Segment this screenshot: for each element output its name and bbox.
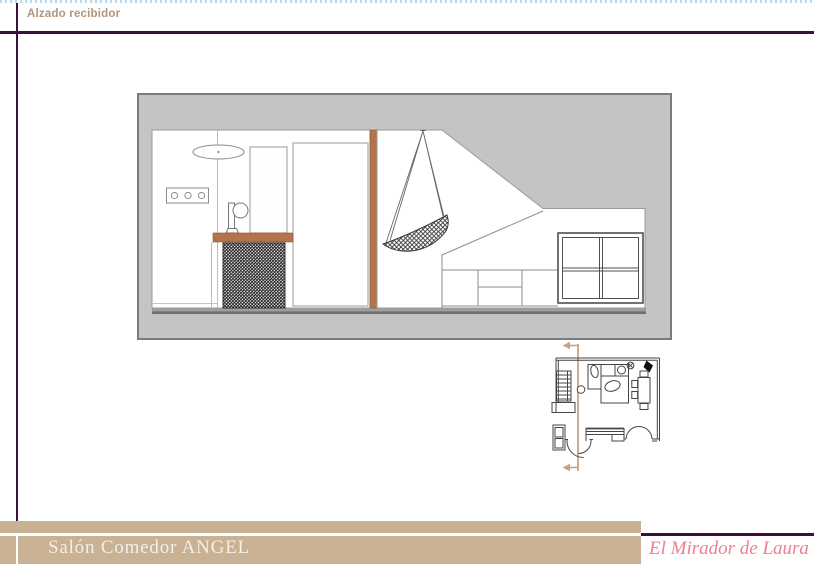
- left-margin-rule: [16, 3, 18, 521]
- floor-line: [152, 308, 646, 314]
- brand-rule: [641, 533, 814, 536]
- switch-panel: [167, 188, 209, 203]
- section-cut-line: [563, 342, 579, 471]
- floor-plan: [545, 338, 670, 478]
- column: [577, 386, 585, 394]
- console-shelf: [213, 233, 293, 242]
- double-door: [626, 427, 652, 440]
- wall-mirror: [250, 147, 287, 233]
- header-rule: [0, 31, 814, 34]
- page: Alzado recibidor: [0, 0, 814, 564]
- radiator-grille: [223, 243, 285, 308]
- wood-partition: [370, 130, 377, 308]
- sofa: [588, 365, 629, 404]
- dining-table: [638, 378, 650, 404]
- elevation-drawing: [137, 93, 672, 340]
- project-title: Salón Comedor ANGEL: [48, 537, 250, 559]
- top-dotted-border: [0, 0, 814, 3]
- entrance-door: [567, 440, 591, 458]
- footer-divider-line: [0, 533, 641, 536]
- window: [558, 233, 643, 303]
- footer-margin-line: [16, 536, 18, 564]
- coffee-table: [604, 379, 622, 393]
- console-table: [553, 425, 565, 450]
- brand-logo-text: El Mirador de Laura: [649, 538, 809, 560]
- dining-chairs: [632, 371, 648, 410]
- ceiling-lamp: [193, 145, 244, 159]
- page-title: Alzado recibidor: [27, 8, 120, 20]
- interior-door: [293, 143, 368, 306]
